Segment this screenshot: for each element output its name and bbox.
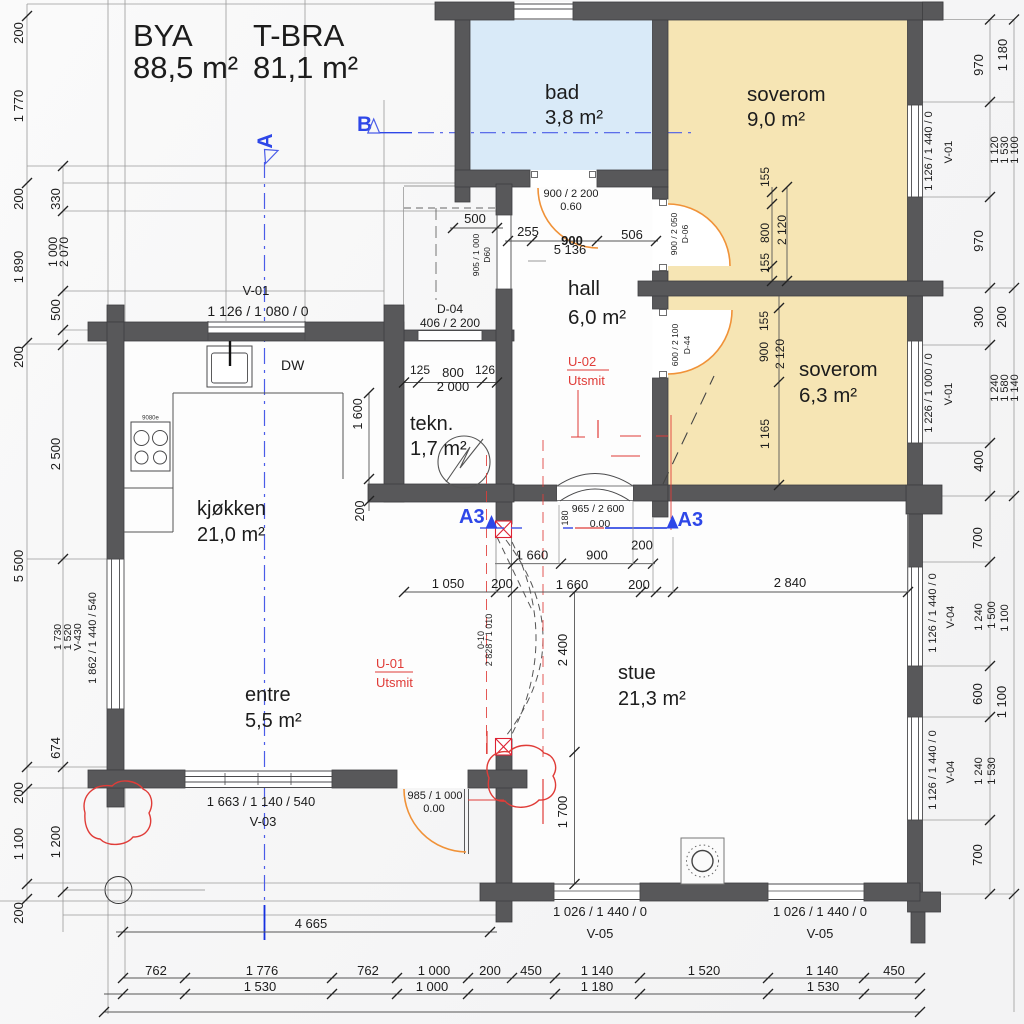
svg-text:2 500: 2 500 xyxy=(48,438,63,471)
svg-text:5,5 m²: 5,5 m² xyxy=(245,710,302,732)
svg-text:2 120: 2 120 xyxy=(773,339,787,369)
svg-text:D-06: D-06 xyxy=(680,225,690,244)
svg-text:U-02: U-02 xyxy=(568,354,596,369)
svg-text:1 200: 1 200 xyxy=(48,826,63,859)
svg-text:6,3 m²: 6,3 m² xyxy=(799,384,857,407)
svg-text:6,0 m²: 6,0 m² xyxy=(568,306,626,329)
svg-text:stue: stue xyxy=(618,662,656,684)
svg-text:1 126 / 1 440 / 0: 1 126 / 1 440 / 0 xyxy=(927,573,939,653)
svg-text:1 240: 1 240 xyxy=(973,757,985,785)
svg-text:2 400: 2 400 xyxy=(555,634,570,667)
svg-text:0.00: 0.00 xyxy=(590,518,611,530)
svg-text:1,7 m²: 1,7 m² xyxy=(410,438,467,460)
svg-text:800: 800 xyxy=(758,223,772,243)
svg-text:400: 400 xyxy=(971,450,986,472)
svg-text:600 / 2 100: 600 / 2 100 xyxy=(670,323,680,366)
svg-text:1 240: 1 240 xyxy=(973,603,985,631)
svg-text:21,0 m²: 21,0 m² xyxy=(197,524,265,546)
svg-text:0.00: 0.00 xyxy=(423,803,444,815)
svg-text:T-BRA: T-BRA xyxy=(253,18,345,53)
svg-text:762: 762 xyxy=(145,963,167,978)
svg-text:1 770: 1 770 xyxy=(11,90,26,123)
svg-text:V-05: V-05 xyxy=(807,926,834,941)
svg-text:200: 200 xyxy=(353,501,367,522)
svg-text:V-01: V-01 xyxy=(943,383,955,406)
svg-text:255: 255 xyxy=(517,224,539,239)
svg-text:bad: bad xyxy=(545,81,579,104)
svg-text:V-03: V-03 xyxy=(250,814,277,829)
svg-text:200: 200 xyxy=(11,782,26,804)
svg-text:970: 970 xyxy=(971,54,986,76)
svg-text:1 100: 1 100 xyxy=(994,686,1009,719)
svg-text:1 530: 1 530 xyxy=(244,979,277,994)
svg-text:1 100: 1 100 xyxy=(11,828,26,861)
svg-text:200: 200 xyxy=(479,963,501,978)
svg-text:330: 330 xyxy=(48,188,63,210)
svg-text:2 000: 2 000 xyxy=(437,379,470,394)
svg-text:88,5 m²: 88,5 m² xyxy=(133,50,238,85)
svg-text:800: 800 xyxy=(442,365,464,380)
svg-text:200: 200 xyxy=(11,188,26,210)
svg-text:3,8 m²: 3,8 m² xyxy=(545,106,603,129)
svg-text:1 050: 1 050 xyxy=(432,576,465,591)
svg-text:2 840: 2 840 xyxy=(774,575,807,590)
svg-text:300: 300 xyxy=(971,306,986,328)
svg-text:762: 762 xyxy=(357,963,379,978)
svg-text:1 226 / 1 000 / 0: 1 226 / 1 000 / 0 xyxy=(923,353,935,433)
svg-text:V-04: V-04 xyxy=(945,761,957,784)
svg-text:1 890: 1 890 xyxy=(11,251,26,284)
svg-text:1 126 / 1 440 / 0: 1 126 / 1 440 / 0 xyxy=(927,730,939,810)
svg-text:1 100: 1 100 xyxy=(1009,136,1021,164)
svg-text:1 026 / 1 440 / 0: 1 026 / 1 440 / 0 xyxy=(773,904,867,919)
svg-text:1 520: 1 520 xyxy=(688,963,721,978)
svg-text:81,1 m²: 81,1 m² xyxy=(253,50,358,85)
svg-text:674: 674 xyxy=(48,737,63,759)
svg-text:200: 200 xyxy=(628,577,650,592)
svg-text:1 862 / 1 440 / 540: 1 862 / 1 440 / 540 xyxy=(87,592,99,684)
svg-text:DW: DW xyxy=(281,357,305,373)
svg-text:1 776: 1 776 xyxy=(246,963,279,978)
svg-text:900: 900 xyxy=(586,548,608,563)
svg-text:125: 125 xyxy=(410,363,430,377)
svg-text:1 026 / 1 440 / 0: 1 026 / 1 440 / 0 xyxy=(553,904,647,919)
svg-text:entre: entre xyxy=(245,684,291,706)
svg-text:21,3 m²: 21,3 m² xyxy=(618,688,686,710)
svg-text:500: 500 xyxy=(464,211,486,226)
svg-text:D-44: D-44 xyxy=(682,336,692,355)
svg-text:soverom: soverom xyxy=(747,83,826,106)
svg-text:2 070: 2 070 xyxy=(57,237,71,267)
svg-text:U-01: U-01 xyxy=(376,656,404,671)
svg-text:1 660: 1 660 xyxy=(516,548,549,563)
svg-text:600: 600 xyxy=(970,683,985,705)
svg-text:985 / 1 000: 985 / 1 000 xyxy=(407,790,462,802)
svg-text:BYA: BYA xyxy=(133,18,193,53)
svg-text:V-04: V-04 xyxy=(945,606,957,629)
svg-text:126: 126 xyxy=(475,363,495,377)
svg-text:1 140: 1 140 xyxy=(806,963,839,978)
svg-text:2 828 / 1 010: 2 828 / 1 010 xyxy=(484,614,494,667)
svg-text:1 600: 1 600 xyxy=(351,398,365,429)
svg-text:200: 200 xyxy=(631,538,653,553)
svg-text:D60: D60 xyxy=(482,247,492,263)
svg-text:450: 450 xyxy=(883,963,905,978)
svg-text:700: 700 xyxy=(970,527,985,549)
svg-text:1 100: 1 100 xyxy=(999,604,1011,632)
svg-text:1 000: 1 000 xyxy=(416,979,449,994)
svg-text:9,0 m²: 9,0 m² xyxy=(747,108,805,131)
svg-text:406 / 2 200: 406 / 2 200 xyxy=(420,316,480,330)
svg-text:V-430: V-430 xyxy=(72,623,84,651)
svg-text:1 530: 1 530 xyxy=(986,757,998,785)
svg-text:155: 155 xyxy=(758,167,772,187)
svg-text:hall: hall xyxy=(568,277,600,300)
svg-text:1 140: 1 140 xyxy=(581,963,614,978)
svg-text:V-05: V-05 xyxy=(587,926,614,941)
svg-text:1 500: 1 500 xyxy=(986,601,998,629)
svg-text:V-01: V-01 xyxy=(943,141,955,164)
svg-text:1 165: 1 165 xyxy=(758,419,772,449)
svg-text:1 530: 1 530 xyxy=(807,979,840,994)
svg-text:180: 180 xyxy=(560,510,570,525)
svg-text:200: 200 xyxy=(994,306,1009,328)
svg-text:tekn.: tekn. xyxy=(410,413,453,435)
svg-text:506: 506 xyxy=(621,227,643,242)
svg-text:155: 155 xyxy=(758,253,772,273)
svg-text:9080e: 9080e xyxy=(142,416,159,422)
svg-text:1 000: 1 000 xyxy=(418,963,451,978)
svg-text:900: 900 xyxy=(757,342,771,362)
svg-text:450: 450 xyxy=(520,963,542,978)
svg-text:D-04: D-04 xyxy=(437,302,463,316)
svg-text:965 / 2 600: 965 / 2 600 xyxy=(572,503,625,515)
svg-text:kjøkken: kjøkken xyxy=(197,498,266,520)
svg-text:A3: A3 xyxy=(459,506,485,528)
svg-text:1 180: 1 180 xyxy=(995,39,1010,72)
svg-text:A: A xyxy=(254,133,277,148)
svg-text:1 663 / 1 140 / 540: 1 663 / 1 140 / 540 xyxy=(207,794,315,809)
svg-text:1 700: 1 700 xyxy=(555,796,570,829)
svg-text:V-01: V-01 xyxy=(243,283,270,298)
svg-text:1 126 / 1 080 / 0: 1 126 / 1 080 / 0 xyxy=(207,303,308,319)
svg-text:1 126 / 1 440 / 0: 1 126 / 1 440 / 0 xyxy=(923,111,935,191)
svg-text:900 / 2 200: 900 / 2 200 xyxy=(543,188,598,200)
svg-text:200: 200 xyxy=(11,346,26,368)
svg-text:soverom: soverom xyxy=(799,358,878,381)
svg-text:1 660: 1 660 xyxy=(556,577,589,592)
svg-text:4 665: 4 665 xyxy=(295,916,328,931)
svg-text:500: 500 xyxy=(48,299,63,321)
svg-text:5 500: 5 500 xyxy=(11,550,26,583)
svg-text:200: 200 xyxy=(491,576,513,591)
svg-text:5 136: 5 136 xyxy=(554,242,587,257)
svg-text:900 / 2 050: 900 / 2 050 xyxy=(669,212,679,255)
svg-text:2 120: 2 120 xyxy=(775,215,789,245)
svg-text:0.60: 0.60 xyxy=(560,201,581,213)
svg-text:1 140: 1 140 xyxy=(1009,374,1021,402)
svg-text:700: 700 xyxy=(970,844,985,866)
svg-text:A3: A3 xyxy=(678,509,704,531)
svg-text:Utsmit: Utsmit xyxy=(568,373,605,388)
svg-text:200: 200 xyxy=(11,902,26,924)
svg-text:1 180: 1 180 xyxy=(581,979,614,994)
svg-text:200: 200 xyxy=(11,22,26,44)
svg-text:155: 155 xyxy=(757,311,771,331)
svg-text:905 / 1 000: 905 / 1 000 xyxy=(471,233,481,276)
svg-text:970: 970 xyxy=(971,230,986,252)
svg-text:Utsmit: Utsmit xyxy=(376,675,413,690)
